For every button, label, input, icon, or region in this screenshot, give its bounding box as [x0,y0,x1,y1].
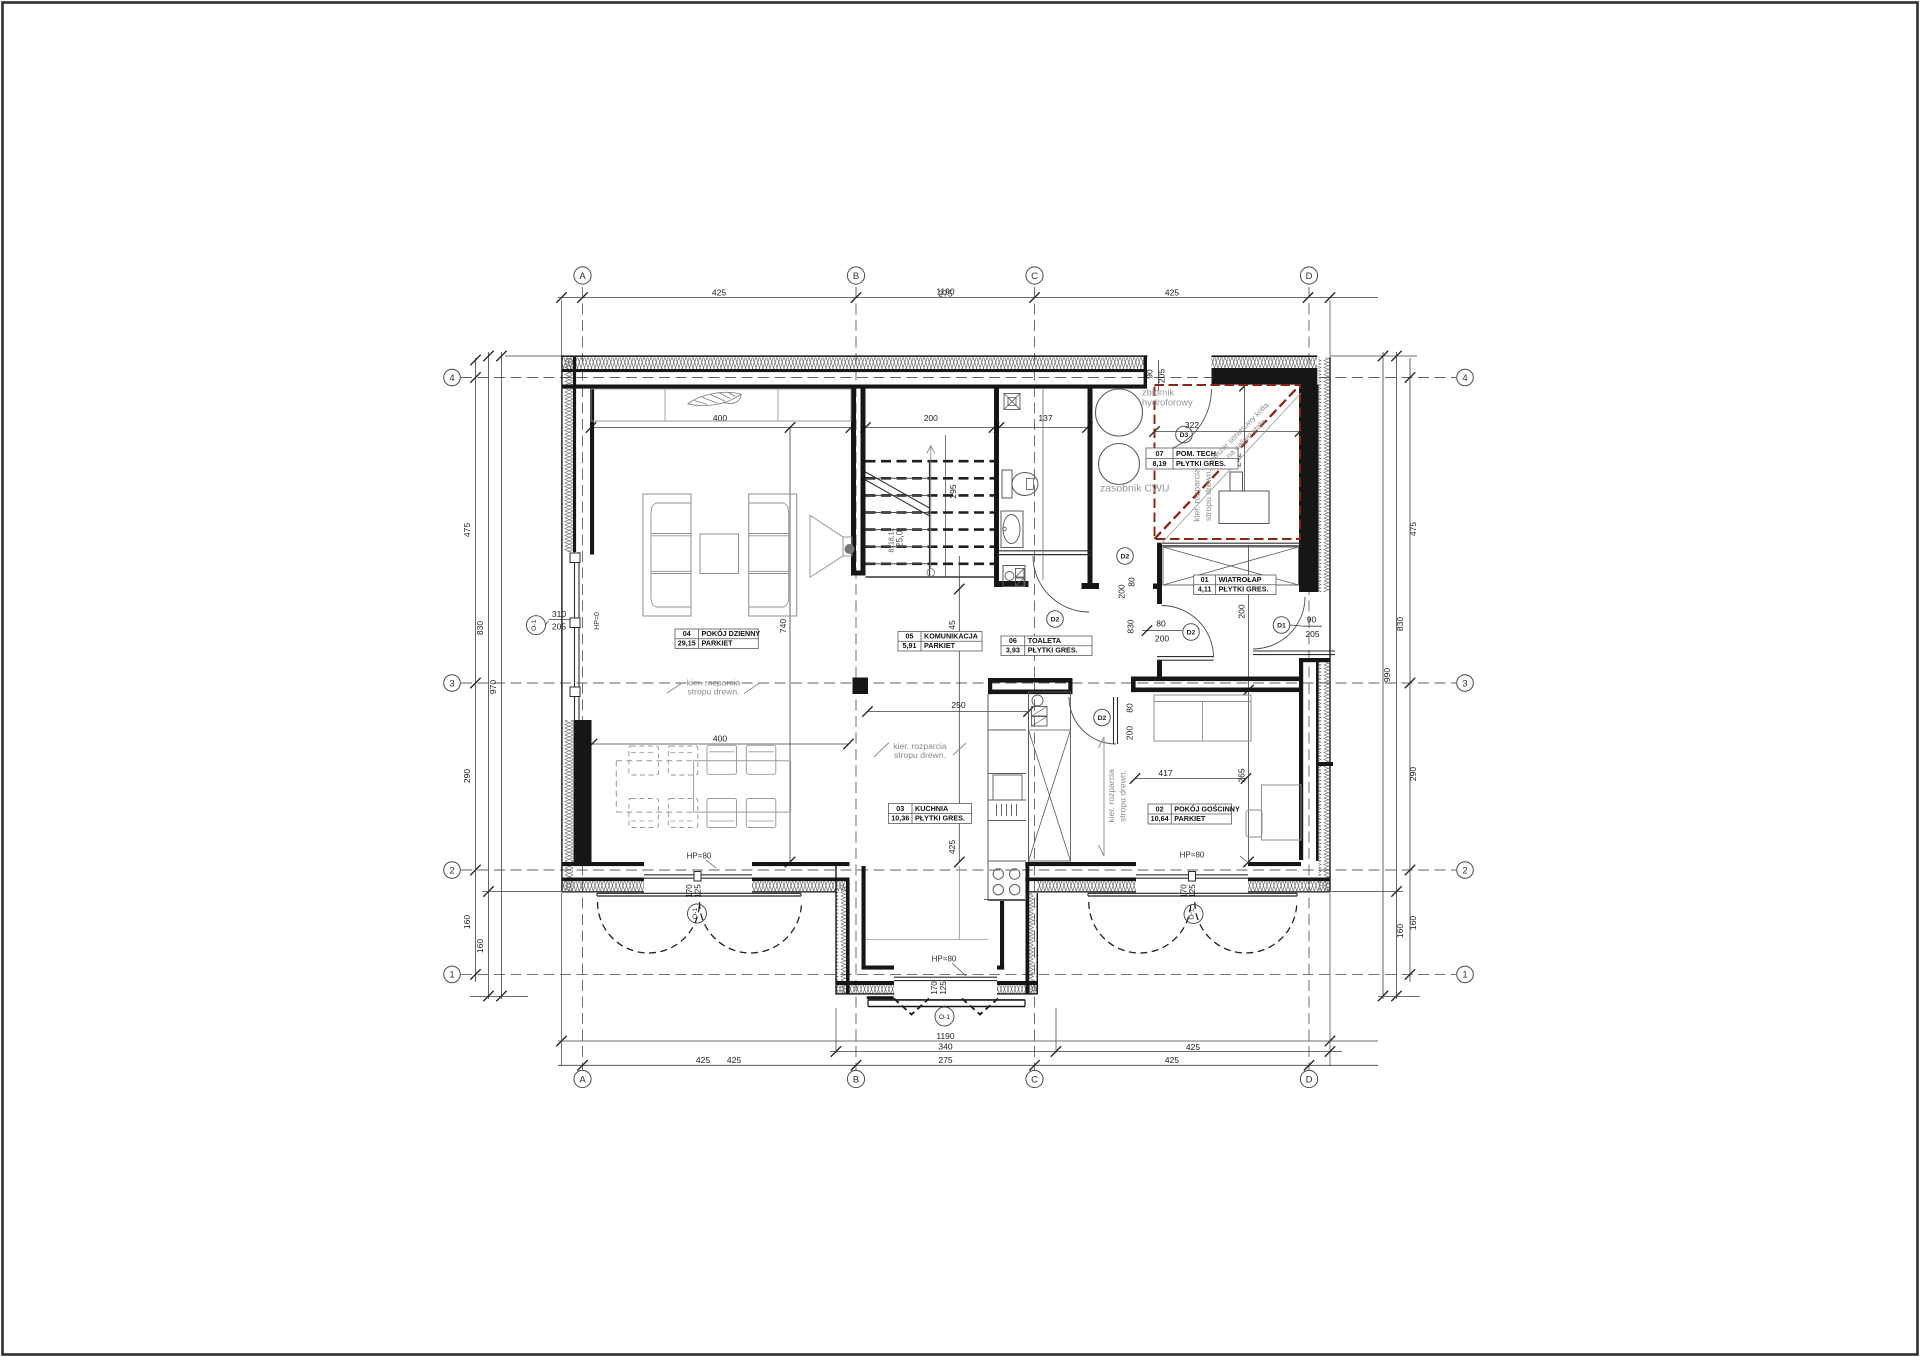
svg-text:290: 290 [462,769,472,783]
svg-text:80: 80 [1125,703,1135,713]
svg-text:125: 125 [694,884,703,898]
svg-text:200: 200 [1155,634,1169,644]
svg-text:160: 160 [475,939,485,953]
svg-text:125: 125 [939,981,948,995]
svg-text:HP=80: HP=80 [687,851,712,860]
svg-text:205: 205 [552,622,566,632]
svg-text:990: 990 [1382,668,1392,682]
svg-text:425: 425 [1186,1042,1200,1052]
svg-text:205: 205 [1305,629,1319,639]
svg-text:B: B [853,1074,859,1085]
svg-text:KOMUNIKACJA: KOMUNIKACJA [924,632,978,641]
svg-text:PARKIET: PARKIET [924,641,956,650]
svg-text:137: 137 [1038,413,1052,423]
svg-text:425: 425 [1165,1055,1179,1065]
svg-text:80: 80 [1127,577,1137,587]
svg-text:8,19: 8,19 [1153,459,1167,468]
svg-text:265: 265 [1237,768,1247,782]
svg-text:D: D [1306,271,1313,282]
svg-text:stropu drewn.: stropu drewn. [1203,469,1213,521]
svg-text:3: 3 [449,678,454,689]
svg-text:O-1: O-1 [939,1014,951,1021]
svg-text:425: 425 [712,287,726,297]
svg-text:90: 90 [1307,615,1317,625]
svg-text:160: 160 [1408,916,1418,930]
svg-text:400: 400 [713,413,727,423]
svg-text:475: 475 [462,523,472,537]
svg-text:90: 90 [1145,369,1155,379]
svg-text:970: 970 [488,680,498,694]
svg-text:170: 170 [930,981,939,995]
svg-text:D: D [1306,1074,1313,1085]
svg-text:06: 06 [1009,636,1017,645]
svg-text:80: 80 [1156,619,1166,629]
svg-text:stropu drewn.: stropu drewn. [1118,770,1128,822]
svg-text:HP=80: HP=80 [932,955,957,964]
svg-text:425: 425 [696,1055,710,1065]
svg-text:KUCHNIA: KUCHNIA [915,804,948,813]
svg-text:417: 417 [1158,768,1172,778]
svg-text:stropu drewn.: stropu drewn. [687,687,739,697]
svg-text:A: A [579,271,586,282]
svg-text:425: 425 [1165,287,1179,297]
svg-text:PŁYTKI GRES.: PŁYTKI GRES. [1176,459,1226,468]
svg-text:stropu drewn.: stropu drewn. [894,750,946,760]
svg-text:zasobnik CWU: zasobnik CWU [1100,483,1169,495]
svg-text:WIATROŁAP: WIATROŁAP [1219,575,1262,584]
svg-text:322: 322 [1185,420,1199,430]
svg-text:1190: 1190 [936,1031,955,1041]
svg-text:03: 03 [896,804,904,813]
svg-text:D1: D1 [1277,623,1286,630]
svg-text:200: 200 [924,413,938,423]
svg-text:4,11: 4,11 [1198,585,1212,594]
svg-text:290: 290 [1408,767,1418,781]
svg-text:D2: D2 [1051,617,1060,624]
svg-text:160: 160 [1395,924,1405,938]
svg-text:D2: D2 [1098,715,1107,722]
svg-text:PŁYTKI GRES.: PŁYTKI GRES. [915,814,965,823]
svg-text:TOALETA: TOALETA [1028,636,1061,645]
svg-text:O-1: O-1 [531,619,538,631]
svg-text:O-1: O-1 [692,908,699,920]
svg-text:29,15: 29,15 [678,639,696,648]
svg-text:205: 205 [1157,369,1167,383]
svg-text:25,0: 25,0 [895,530,905,547]
svg-text:hydroforowy: hydroforowy [1142,398,1193,408]
svg-text:D3: D3 [1180,432,1189,439]
svg-text:C: C [1031,1074,1038,1085]
svg-text:740: 740 [778,619,788,633]
svg-text:PŁYTKI GRES.: PŁYTKI GRES. [1219,585,1269,594]
svg-text:5,91: 5,91 [903,641,917,650]
svg-text:PARKIET: PARKIET [702,639,734,648]
svg-text:4: 4 [449,373,454,384]
svg-text:zbiornik: zbiornik [1142,388,1174,398]
svg-text:02: 02 [1156,804,1164,813]
svg-text:kier. rozparcia: kier. rozparcia [1106,769,1116,823]
svg-text:O-1: O-1 [1189,908,1196,920]
svg-text:POKÓJ GOŚCINNY: POKÓJ GOŚCINNY [1174,804,1240,813]
svg-text:425: 425 [947,840,957,854]
svg-text:3: 3 [1462,678,1467,689]
svg-text:200: 200 [1237,604,1247,618]
svg-text:D2: D2 [1121,554,1130,561]
svg-text:475: 475 [1408,522,1418,536]
svg-text:04: 04 [683,629,691,638]
svg-text:01: 01 [1201,575,1209,584]
svg-text:830: 830 [1126,619,1136,633]
svg-text:PARKIET: PARKIET [1174,814,1206,823]
svg-text:10,36: 10,36 [891,814,909,823]
svg-text:07: 07 [1156,449,1164,458]
svg-text:310: 310 [552,609,566,619]
svg-text:340: 340 [938,1041,952,1051]
svg-text:4: 4 [1462,373,1467,384]
svg-text:C: C [1031,271,1038,282]
svg-text:D2: D2 [1187,630,1196,637]
svg-text:PŁYTKI GRES.: PŁYTKI GRES. [1028,646,1078,655]
svg-text:2: 2 [449,865,454,876]
svg-text:3,93: 3,93 [1006,646,1020,655]
svg-text:125: 125 [1188,884,1197,898]
svg-text:HP=80: HP=80 [1180,851,1205,860]
svg-text:POKÓJ DZIENNY: POKÓJ DZIENNY [702,629,761,638]
svg-text:275: 275 [938,1055,952,1065]
svg-text:200: 200 [1117,584,1127,598]
svg-text:830: 830 [475,621,485,635]
svg-text:45: 45 [947,620,957,630]
svg-text:10,64: 10,64 [1151,814,1169,823]
svg-text:160: 160 [462,915,472,929]
svg-text:250: 250 [951,700,965,710]
svg-text:1: 1 [449,970,454,981]
svg-text:830: 830 [1395,617,1405,631]
svg-text:05: 05 [906,632,914,641]
svg-text:A: A [579,1074,586,1085]
svg-text:B: B [853,271,859,282]
svg-text:275: 275 [938,288,952,298]
svg-text:400: 400 [713,734,727,744]
svg-text:200: 200 [1125,726,1135,740]
svg-text:kier. rozparcia: kier. rozparcia [1192,468,1202,522]
svg-text:2: 2 [1462,865,1467,876]
svg-text:HP=0: HP=0 [594,612,601,630]
svg-text:1: 1 [1462,970,1467,981]
svg-text:425: 425 [727,1055,741,1065]
